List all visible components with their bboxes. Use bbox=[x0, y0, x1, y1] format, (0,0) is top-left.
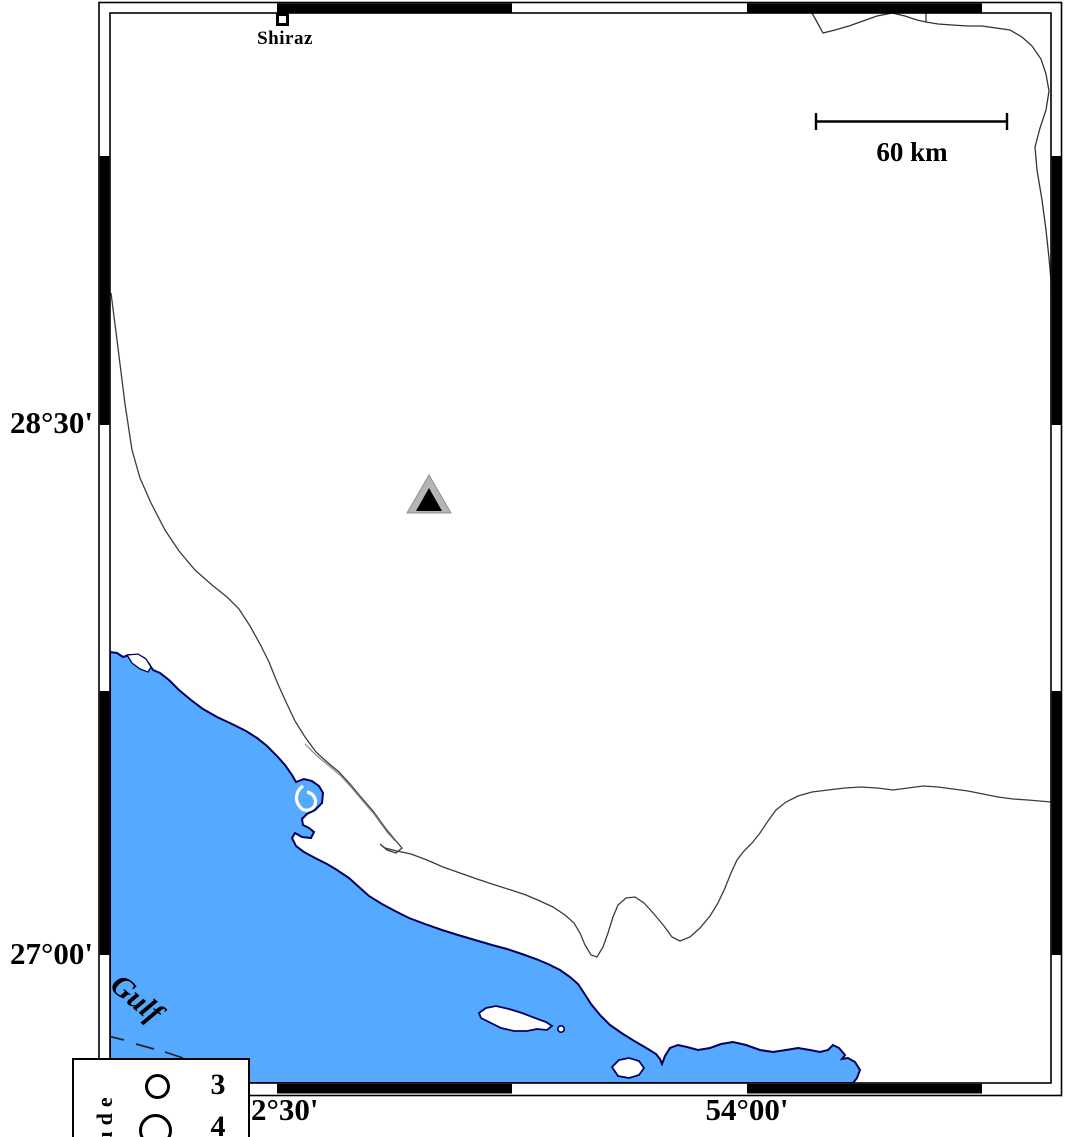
legend-symbol-circle-small bbox=[145, 1074, 170, 1099]
scale-bar-label: 60 km bbox=[822, 137, 1002, 168]
city-label-shiraz: Shiraz bbox=[235, 28, 335, 50]
map-canvas bbox=[0, 0, 1066, 1137]
legend-entry-label-3: 3 bbox=[200, 1068, 236, 1102]
city-marker-square bbox=[278, 15, 288, 25]
island-small bbox=[612, 1058, 644, 1078]
lon-label-54-00: 54°00' bbox=[667, 1092, 827, 1128]
legend-entry-label-4: 4 bbox=[200, 1110, 236, 1137]
lat-label-27-00: 27°00' bbox=[0, 936, 93, 972]
legend-title: Magnitude bbox=[92, 1091, 118, 1137]
islet bbox=[558, 1026, 564, 1032]
lat-label-28-30: 28°30' bbox=[0, 405, 93, 441]
scale-bar bbox=[816, 113, 1007, 130]
map-figure: 28°30' 27°00' 52°30' 54°00' Shiraz 60 km… bbox=[0, 0, 1066, 1137]
